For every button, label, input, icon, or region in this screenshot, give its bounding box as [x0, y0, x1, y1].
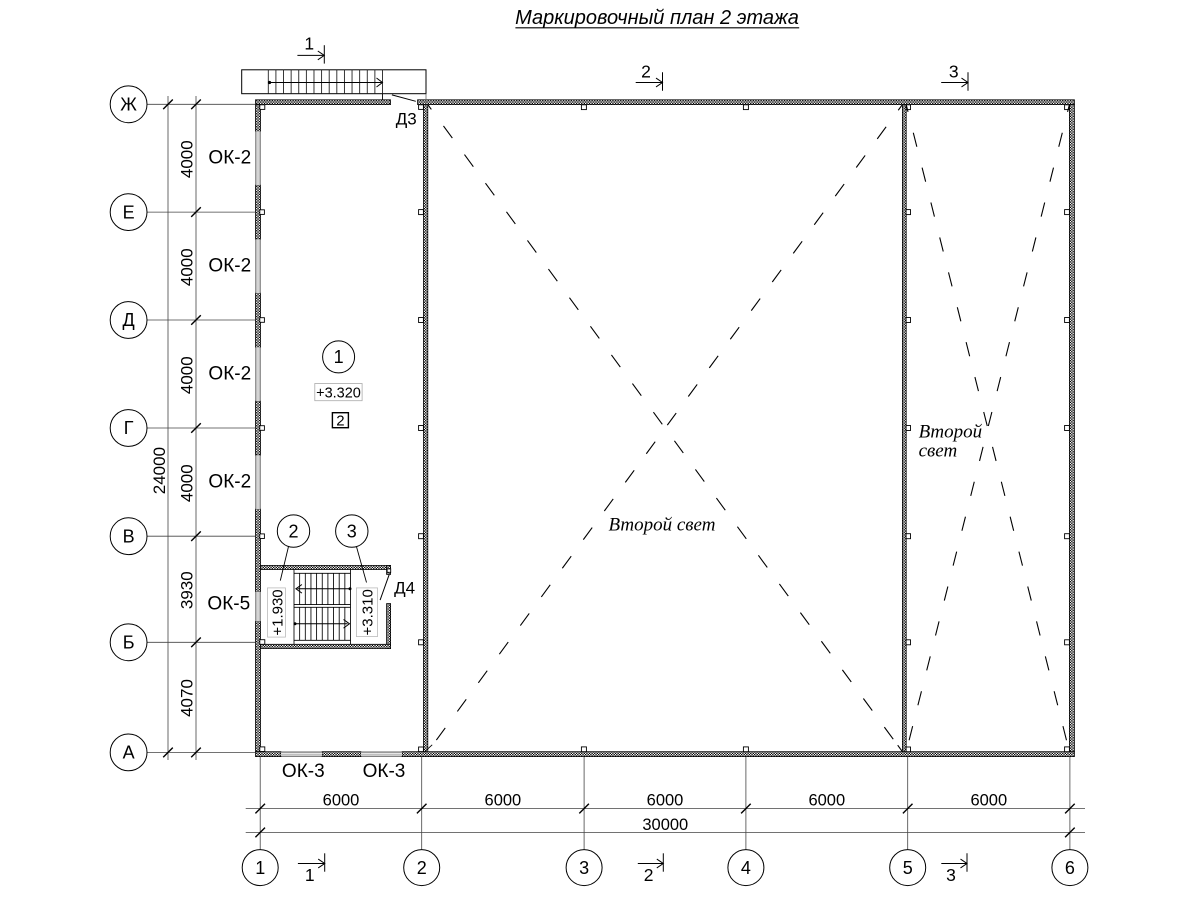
- svg-text:5: 5: [903, 858, 913, 878]
- svg-text:ОК-2: ОК-2: [208, 255, 251, 276]
- svg-text:4000: 4000: [177, 140, 196, 178]
- svg-text:3930: 3930: [177, 571, 196, 609]
- svg-text:4000: 4000: [177, 356, 196, 394]
- svg-text:1: 1: [304, 34, 314, 54]
- svg-text:ОК-3: ОК-3: [363, 761, 406, 782]
- svg-text:1: 1: [255, 858, 265, 878]
- svg-text:4070: 4070: [177, 679, 196, 717]
- svg-text:Второй свет: Второй свет: [609, 515, 716, 536]
- svg-text:Ж: Ж: [120, 95, 137, 115]
- svg-text:Е: Е: [123, 202, 135, 222]
- svg-text:24000: 24000: [150, 447, 169, 494]
- svg-text:+3.320: +3.320: [316, 386, 361, 402]
- svg-text:6000: 6000: [970, 792, 1007, 810]
- svg-text:1: 1: [305, 865, 315, 885]
- svg-text:4000: 4000: [177, 248, 196, 286]
- svg-text:Маркировочный план 2 этажа: Маркировочный план 2 этажа: [515, 7, 799, 29]
- svg-text:6000: 6000: [647, 792, 684, 810]
- svg-text:6000: 6000: [808, 792, 845, 810]
- svg-text:2: 2: [336, 412, 344, 429]
- svg-text:Г: Г: [124, 418, 134, 438]
- svg-text:свет: свет: [919, 440, 958, 461]
- svg-text:4: 4: [741, 858, 751, 878]
- svg-text:А: А: [123, 743, 135, 763]
- svg-text:В: В: [123, 526, 135, 546]
- svg-text:+3.310: +3.310: [360, 589, 377, 635]
- svg-text:6: 6: [1065, 858, 1075, 878]
- svg-text:3: 3: [579, 858, 589, 878]
- svg-text:Д4: Д4: [394, 579, 415, 598]
- svg-text:3: 3: [946, 865, 956, 885]
- svg-text:4000: 4000: [177, 464, 196, 502]
- svg-text:ОК-5: ОК-5: [207, 594, 250, 615]
- svg-text:6000: 6000: [323, 792, 360, 810]
- svg-text:ОК-2: ОК-2: [208, 147, 251, 168]
- svg-text:Б: Б: [123, 633, 135, 653]
- svg-text:1: 1: [334, 347, 344, 367]
- svg-text:ОК-3: ОК-3: [282, 761, 325, 782]
- svg-text:3: 3: [949, 61, 959, 81]
- svg-text:30000: 30000: [642, 816, 688, 834]
- svg-text:3: 3: [347, 521, 357, 541]
- svg-text:2: 2: [288, 521, 298, 541]
- svg-text:6000: 6000: [485, 792, 522, 810]
- svg-text:ОК-2: ОК-2: [208, 363, 251, 384]
- svg-text:2: 2: [641, 61, 651, 81]
- svg-text:ОК-2: ОК-2: [208, 471, 251, 492]
- svg-text:Д: Д: [122, 310, 134, 330]
- svg-text:+1.930: +1.930: [270, 589, 287, 635]
- svg-text:2: 2: [644, 865, 654, 885]
- svg-text:2: 2: [417, 858, 427, 878]
- svg-text:Д3: Д3: [396, 110, 417, 129]
- svg-text:Второй: Второй: [919, 421, 983, 442]
